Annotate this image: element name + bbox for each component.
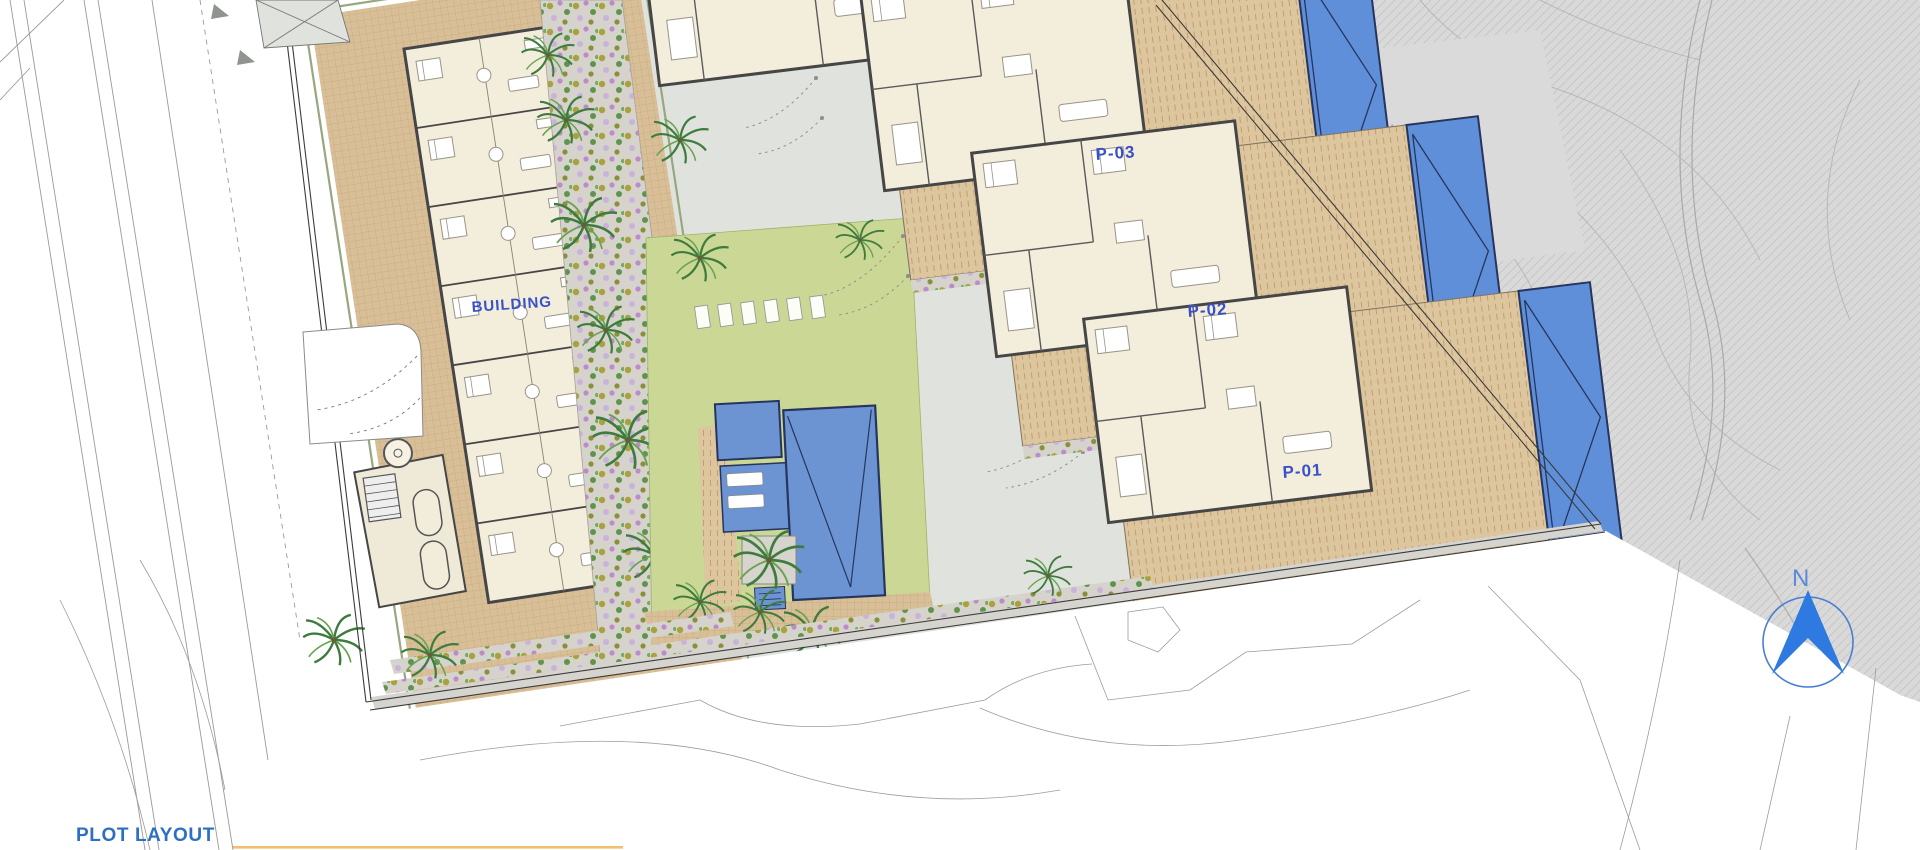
north-label: N xyxy=(1792,565,1809,592)
plot-label-p02: P-02 xyxy=(1187,299,1228,321)
page-title: PLOT LAYOUT xyxy=(76,825,215,846)
title-underline xyxy=(233,846,623,849)
lounger xyxy=(727,472,764,487)
kids-pool xyxy=(715,401,782,460)
plot-entrance xyxy=(303,324,423,444)
lounger xyxy=(728,494,765,509)
site-plan-drawing: C A M P O D E G O L F xyxy=(0,0,1920,850)
access-ramp xyxy=(256,0,350,48)
plot-label-p03: P-03 xyxy=(1095,142,1136,164)
plot-label-p01: P-01 xyxy=(1282,460,1323,482)
